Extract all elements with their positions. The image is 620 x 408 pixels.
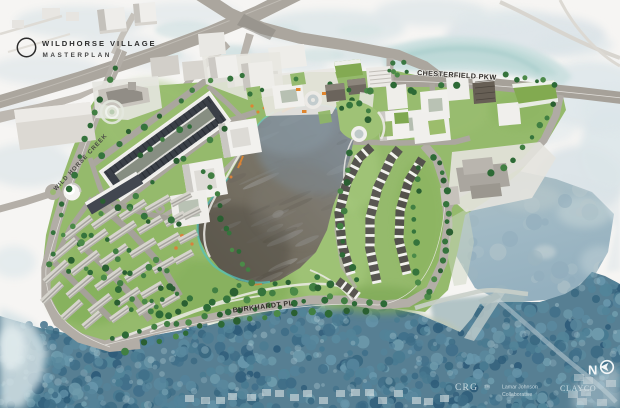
svg-text:MASTERPLAN: MASTERPLAN [43, 52, 112, 59]
svg-text:™: ™ [484, 385, 490, 391]
svg-text:Collaborative: Collaborative [502, 392, 532, 398]
svg-text:WILDHORSE VILLAGE: WILDHORSE VILLAGE [42, 39, 157, 48]
svg-text:N: N [588, 363, 597, 378]
svg-text:Lamar Johnson: Lamar Johnson [502, 385, 538, 391]
svg-text:CLAYCO: CLAYCO [560, 384, 596, 393]
svg-text:CRG: CRG [455, 383, 478, 393]
